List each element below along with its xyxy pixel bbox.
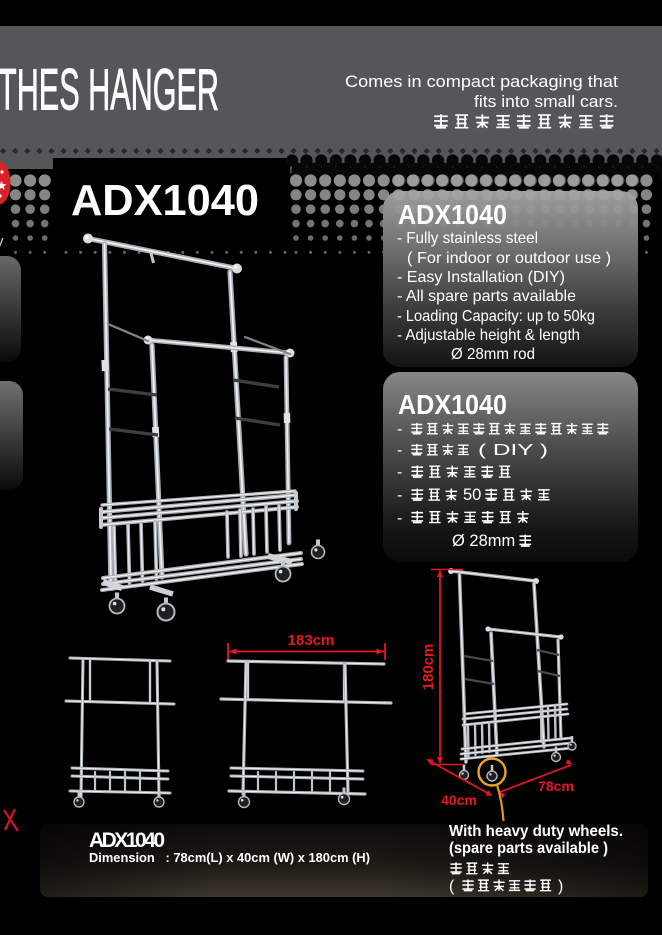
svg-text:-: - <box>397 510 402 527</box>
svg-text:ADX1040: ADX1040 <box>89 829 165 852</box>
svg-text:78cm: 78cm <box>538 778 574 794</box>
svg-text:fits into small cars.: fits into small cars. <box>474 92 618 111</box>
svg-text:): ) <box>558 878 563 895</box>
svg-text:183cm: 183cm <box>288 632 335 649</box>
svg-text:-: - <box>397 442 402 459</box>
svg-text:(: ( <box>449 878 455 895</box>
svg-text:( DIY ): ( DIY ) <box>478 442 548 459</box>
svg-text:THES HANGER: THES HANGER <box>0 58 219 123</box>
svg-text:-: - <box>397 464 402 481</box>
svg-text:-: - <box>397 487 402 504</box>
svg-text:50: 50 <box>463 486 481 504</box>
svg-text:- Loading Capacity: up to 50k: - Loading Capacity: up to 50kg <box>397 308 595 325</box>
svg-text:- Adjustable height & length: - Adjustable height & length <box>397 327 580 344</box>
svg-text:y: y <box>0 233 4 250</box>
svg-text:- All spare parts available: - All spare parts available <box>397 288 576 305</box>
svg-text:180cm: 180cm <box>420 644 437 691</box>
svg-text:Ø 28mm rod: Ø 28mm rod <box>451 346 535 363</box>
svg-text:With heavy duty wheels.: With heavy duty wheels. <box>449 823 623 840</box>
svg-text:(spare parts available ): (spare parts available ) <box>449 840 608 857</box>
svg-text:Ø 28mm: Ø 28mm <box>452 532 515 550</box>
svg-text:ADX1040: ADX1040 <box>398 389 507 420</box>
svg-text:- Fully stainless steel: - Fully stainless steel <box>397 230 538 247</box>
svg-text:Dimension : 78cm(L) x 40cm (: Dimension : 78cm(L) x 40cm (W) x 180cm (… <box>89 850 370 865</box>
svg-text:ADX1040: ADX1040 <box>71 176 259 225</box>
svg-text:ADX1040: ADX1040 <box>398 199 507 230</box>
svg-text:- Easy Installation (DIY): - Easy Installation (DIY) <box>397 269 565 286</box>
svg-text:Comes in compact packaging tha: Comes in compact packaging that <box>345 72 618 91</box>
svg-text:-: - <box>397 421 402 438</box>
svg-text:40cm: 40cm <box>441 792 477 808</box>
svg-text:( For indoor or outdoor use ): ( For indoor or outdoor use ) <box>407 250 611 267</box>
